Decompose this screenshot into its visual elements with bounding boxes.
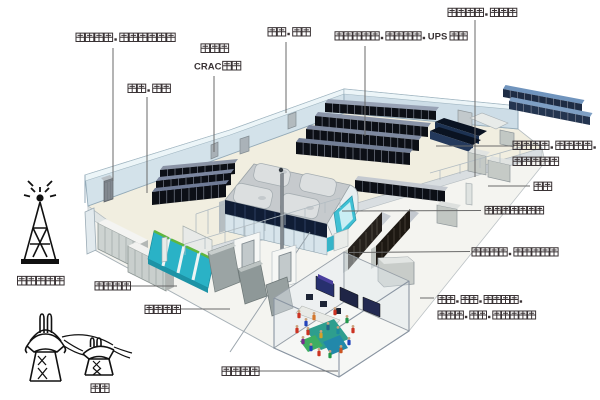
- svg-text:CRAC: CRAC: [194, 61, 222, 72]
- svg-text:UPS: UPS: [428, 31, 448, 42]
